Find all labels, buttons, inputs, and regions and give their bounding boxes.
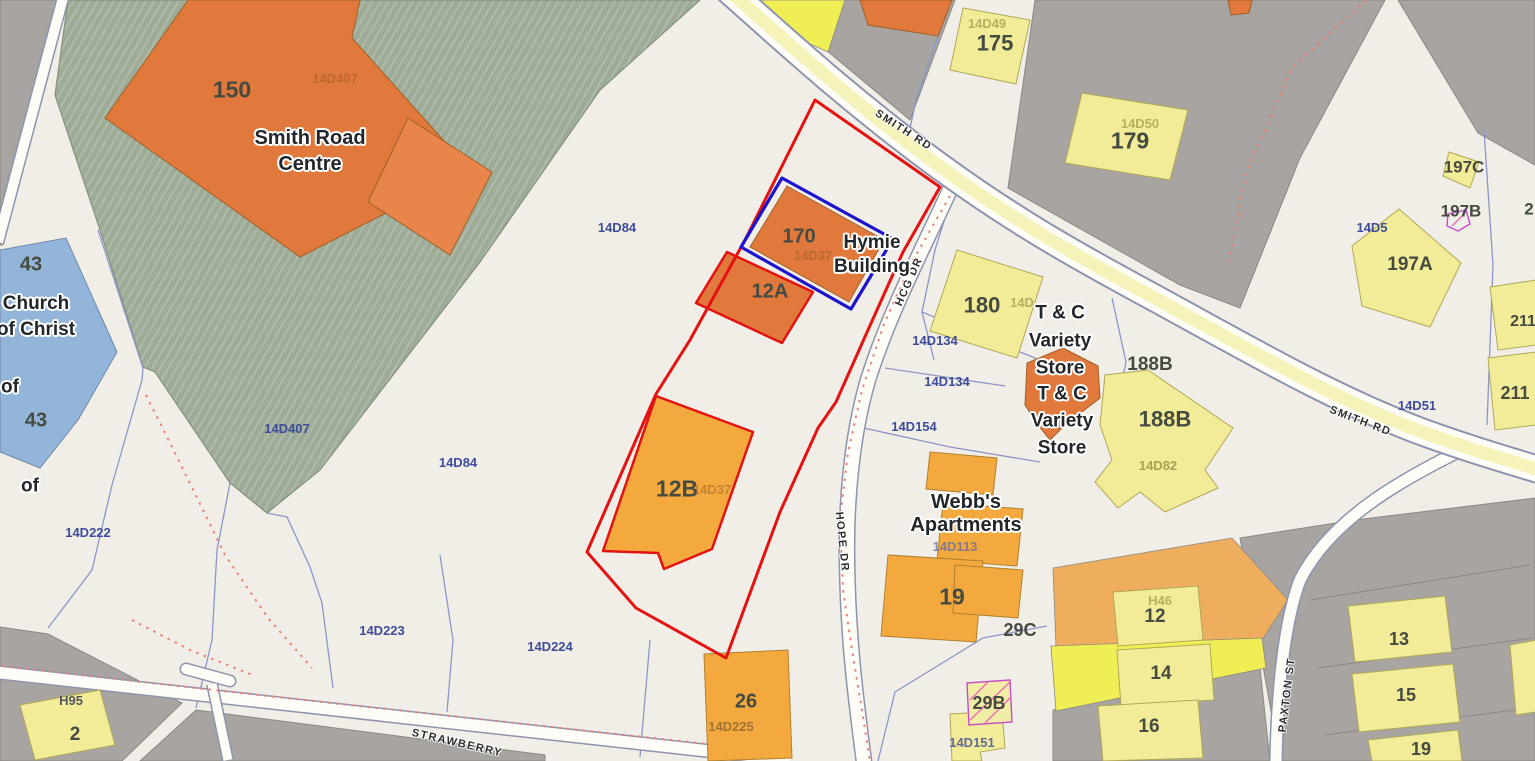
faint-label-14d113: 14D113 (933, 539, 978, 555)
building-label-188b: 188B (1139, 405, 1192, 433)
building-label-26: 26 (735, 690, 757, 715)
building-label-197b: 197B (1441, 200, 1482, 221)
building-top-orange-small[interactable] (1228, 0, 1252, 15)
building-label-197c: 197C (1444, 156, 1485, 177)
building-label-170: 170 (782, 225, 815, 250)
parcel-label-14d154: 14D154 (891, 419, 937, 435)
hymie-building-label: Hymie Building (834, 231, 910, 279)
faint-label-14d50: 14D50 (1121, 116, 1159, 132)
parcel-label-14d223: 14D223 (359, 623, 405, 639)
parcel-label-29b: 29B (972, 692, 1005, 715)
parcel-label-14d407: 14D407 (264, 421, 310, 437)
church-of-christ-label: Church of Christ (0, 291, 75, 343)
building-label-12a: 12A (752, 280, 789, 305)
church-of-fragment-b: of (21, 475, 39, 500)
parcel-label-14d134-a: 14D134 (912, 333, 958, 349)
parcel-label-14d134-b: 14D134 (924, 374, 970, 390)
parcel-label-14d84-a: 14D84 (598, 220, 636, 236)
faint-label-h46: H46 (1148, 593, 1172, 609)
tc-variety-store-label-lower: T & C Variety Store (1031, 382, 1093, 463)
parcel-label-14d151: 14D151 (949, 735, 995, 751)
building-label-19-se: 19 (1411, 738, 1431, 761)
map-canvas (0, 0, 1535, 761)
faint-label-14d: 14D (1010, 295, 1034, 311)
building-label-13: 13 (1389, 628, 1409, 651)
parcel-gray-topright[interactable] (1398, 0, 1535, 165)
building-label-2-edge: 2 (1524, 198, 1533, 219)
building-label-197a: 197A (1387, 253, 1432, 277)
parcel-label-14d5: 14D5 (1356, 220, 1387, 236)
building-188b[interactable] (1095, 370, 1233, 512)
building-label-15: 15 (1396, 684, 1416, 707)
building-label-175: 175 (977, 29, 1014, 57)
building-label-19-webbs: 19 (939, 583, 965, 612)
faint-label-14d407: 14D407 (312, 71, 358, 87)
building-label-12b: 12B (656, 475, 698, 504)
webbs-apartments-label: Webb's Apartments (910, 491, 1021, 537)
parcel-label-14d225: 14D225 (708, 719, 754, 735)
faint-label-14d49: 14D49 (968, 16, 1006, 32)
building-label-16: 16 (1138, 715, 1159, 739)
building-43-church[interactable] (0, 238, 117, 468)
building-label-150: 150 (213, 76, 251, 105)
parcel-label-14d51: 14D51 (1398, 398, 1436, 414)
building-19-webbs-n[interactable] (926, 452, 997, 495)
parcel-label-14d84-b: 14D84 (439, 455, 477, 471)
parcel-label-h95: H95 (59, 693, 83, 709)
map-viewport[interactable]: SMITH RD SMITH RD HCG DR HOPE DR PAXTON … (0, 0, 1535, 761)
building-label-180: 180 (964, 291, 1001, 319)
building-label-43-b: 43 (25, 409, 47, 434)
faint-label-14d37-a: 14D37 (794, 248, 832, 264)
building-label-14: 14 (1150, 662, 1171, 686)
building-label-43-a: 43 (20, 253, 42, 278)
parcel-label-14d224: 14D224 (527, 639, 573, 655)
church-of-fragment-a: of (1, 376, 19, 401)
smith-road-centre-label: Smith Road Centre (254, 125, 365, 177)
tc-variety-store-label-upper: T & C Variety Store (1029, 300, 1091, 383)
parcel-label-29c: 29C (1003, 619, 1036, 642)
parcel-label-188b: 188B (1127, 353, 1172, 377)
building-label-211-a: 211 (1510, 312, 1535, 332)
parcel-label-14d222: 14D222 (65, 525, 111, 541)
building-label-2-sw: 2 (70, 723, 81, 747)
faint-label-14d82: 14D82 (1139, 458, 1177, 474)
faint-label-14d37-b: 14D37 (693, 482, 731, 498)
building-label-211-b: 211 (1500, 382, 1529, 405)
